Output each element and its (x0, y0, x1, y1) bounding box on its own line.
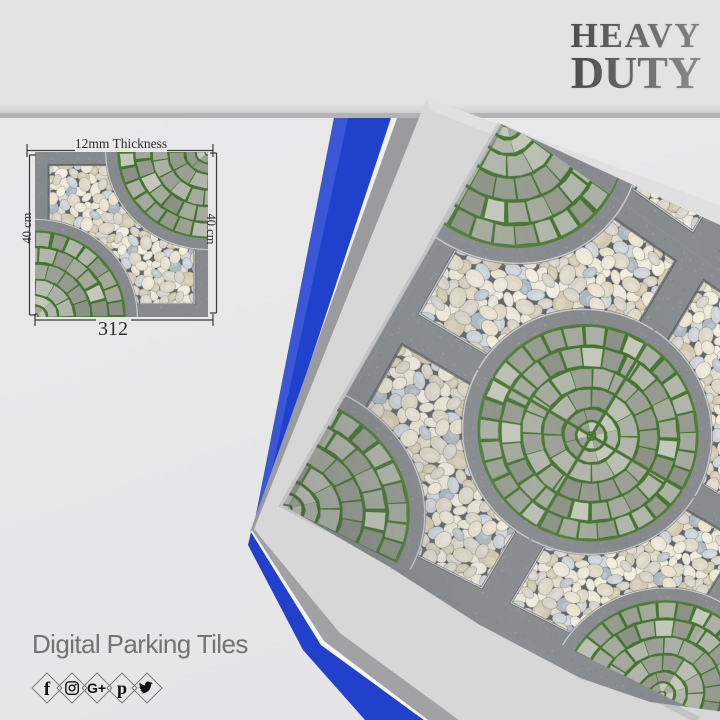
svg-text:40 cm: 40 cm (20, 212, 34, 243)
svg-text:12mm Thickness: 12mm Thickness (75, 136, 167, 151)
svg-text:312: 312 (98, 318, 128, 340)
svg-text:f: f (44, 679, 51, 700)
svg-text:40 cm: 40 cm (204, 214, 218, 245)
svg-text:p: p (117, 678, 127, 698)
svg-text:G+: G+ (87, 680, 106, 696)
